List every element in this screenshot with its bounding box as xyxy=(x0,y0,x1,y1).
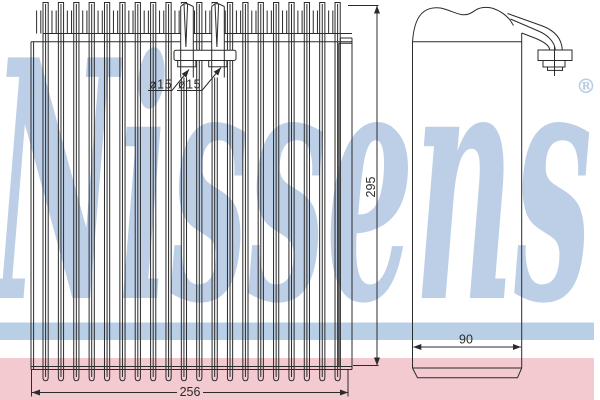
pipe-diameter-label: ø15 xyxy=(178,78,201,92)
pipe-flange-bar xyxy=(174,50,236,60)
width-dim-label: 256 xyxy=(180,385,201,399)
product-drawing-canvas: Nissens ® ø15 ø15 xyxy=(0,0,600,400)
pipe-diameter-label: ø15 xyxy=(149,78,172,92)
height-dim-label: 295 xyxy=(364,177,378,198)
registered-trademark-icon: ® xyxy=(576,74,596,98)
technical-drawing: Nissens ® ø15 ø15 xyxy=(0,0,600,400)
depth-dim-label: 90 xyxy=(459,333,473,347)
